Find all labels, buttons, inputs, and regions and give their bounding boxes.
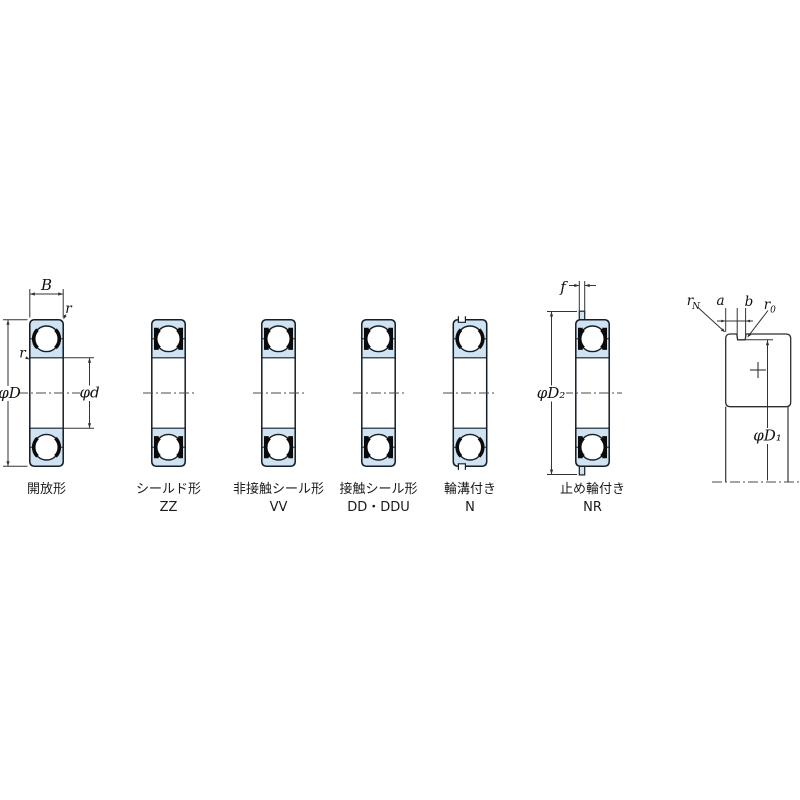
bearing-types-diagram: B r r φD φd: [0, 0, 800, 800]
bearing-types-figure: B r r φD φd: [0, 0, 800, 800]
dimension-rN: [698, 307, 726, 332]
bearing-ring-groove-n: [443, 316, 497, 471]
code-n: N: [465, 500, 475, 515]
dim-label-phiD: φD: [0, 384, 21, 402]
bearing-open: B r r φD φd: [0, 276, 100, 466]
bearing-contact-seal-dd: [353, 320, 406, 466]
captions: 開放形 シールド形 非接触シール形 接触シール形 輪溝付き 止め輪付き ZZ V…: [27, 481, 625, 515]
groove-cut-top: [459, 316, 466, 322]
bearing-noncontact-seal-vv: [253, 320, 306, 466]
dim-label-phiD2: φD₂: [537, 384, 566, 402]
label-noncontact-seal: 非接触シール形: [233, 481, 324, 497]
snap-ring-groove-detail: a b r N r 0 φD₁: [687, 293, 799, 482]
label-contact-seal: 接触シール形: [339, 481, 417, 497]
dim-label-phiD1: φD₁: [753, 427, 782, 445]
groove-cut-bottom: [459, 464, 466, 470]
dim-label-phid: φd: [79, 384, 99, 402]
dim-label-rN-sub: N: [691, 302, 701, 312]
dim-label-b: b: [745, 294, 754, 310]
code-vv: VV: [270, 500, 288, 515]
dim-label-r0-sub: 0: [770, 306, 776, 316]
label-open-type: 開放形: [27, 482, 66, 497]
code-dd: DD・DDU: [347, 500, 410, 515]
snap-ring-tab-bottom: [579, 466, 584, 475]
label-shielded-type: シールド形: [136, 482, 201, 497]
dimension-f: [569, 281, 596, 315]
bearing-shielded-zz: [143, 320, 197, 466]
dimension-r-inner: [25, 356, 29, 359]
dim-label-f: f: [559, 278, 568, 296]
dim-label-a: a: [716, 293, 724, 309]
label-ring-groove: 輪溝付き: [444, 481, 496, 497]
bearing-snap-ring-nr: f φD₂: [536, 278, 622, 475]
dim-label-r-outer: r: [65, 301, 73, 317]
snap-ring-tab-top: [579, 311, 584, 320]
dim-label-r-inner: r: [19, 346, 27, 362]
code-zz: ZZ: [160, 500, 178, 515]
code-nr: NR: [583, 500, 602, 515]
dim-label-B: B: [40, 276, 52, 294]
label-snap-ring: 止め輪付き: [560, 481, 625, 497]
